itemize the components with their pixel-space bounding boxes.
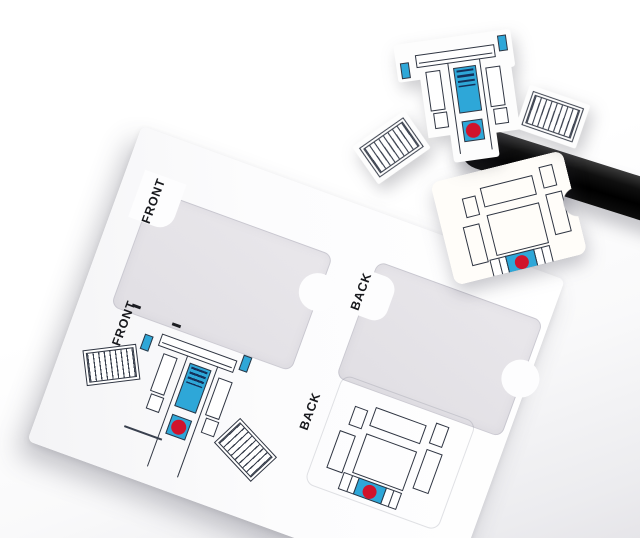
- blue-tab-left: [140, 334, 154, 352]
- side-panel: [493, 107, 509, 125]
- red-button: [465, 122, 482, 139]
- panel-outline: [545, 190, 572, 235]
- die-cut-line: [124, 425, 162, 441]
- panel-outline: [538, 164, 557, 189]
- panel-outline: [412, 449, 442, 494]
- back-label-bottom: BACK: [297, 390, 323, 432]
- front-design-peeled: [373, 22, 554, 174]
- panel-outline: [429, 423, 450, 448]
- panel-outline: [463, 223, 489, 266]
- panel-outline: [326, 430, 356, 473]
- vent-grill-right: [214, 418, 277, 482]
- red-button: [169, 418, 188, 437]
- photo-scene: FRONT BACK FRONT BACK: [0, 0, 640, 538]
- peeled-back-sticker: [430, 183, 566, 289]
- side-panel: [146, 393, 165, 413]
- side-panel: [201, 418, 220, 438]
- vent-grill-right: [521, 91, 584, 143]
- peeled-front-sticker: [373, 22, 556, 184]
- panel-outline: [480, 175, 537, 207]
- red-button: [361, 483, 379, 501]
- side-panel: [433, 111, 449, 129]
- button-pad: [461, 119, 485, 143]
- blue-tab-right: [238, 355, 252, 373]
- registration-tick: [172, 322, 181, 328]
- blue-tab-right: [497, 34, 508, 51]
- panel-outline: [348, 406, 368, 430]
- blue-tab-left: [400, 62, 411, 79]
- side-panel: [425, 70, 445, 112]
- panel-outline: [462, 195, 480, 218]
- red-button: [513, 254, 530, 271]
- vent-grill-left: [82, 344, 140, 386]
- side-panel: [485, 66, 505, 108]
